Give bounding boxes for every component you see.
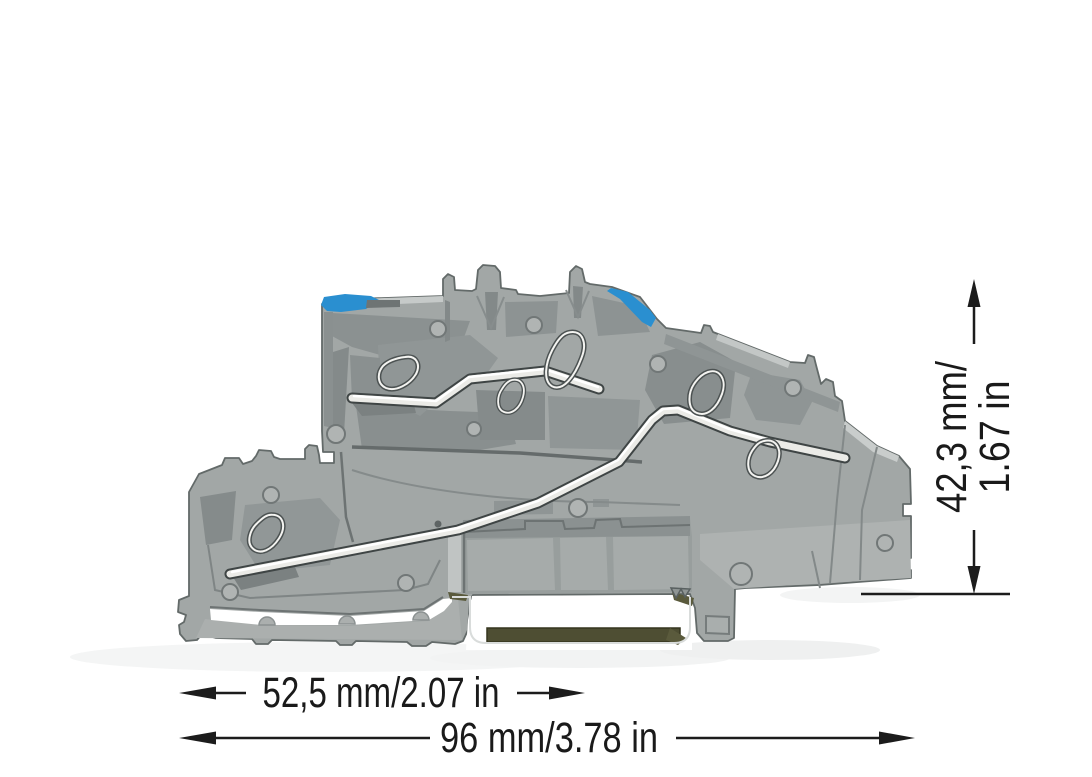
svg-text:96 mm/3.78 in: 96 mm/3.78 in (440, 714, 658, 762)
svg-text:1.67 in: 1.67 in (971, 381, 1019, 494)
svg-text:52,5 mm/2.07 in: 52,5 mm/2.07 in (263, 669, 500, 717)
svg-text:42,3 mm/: 42,3 mm/ (928, 361, 976, 513)
